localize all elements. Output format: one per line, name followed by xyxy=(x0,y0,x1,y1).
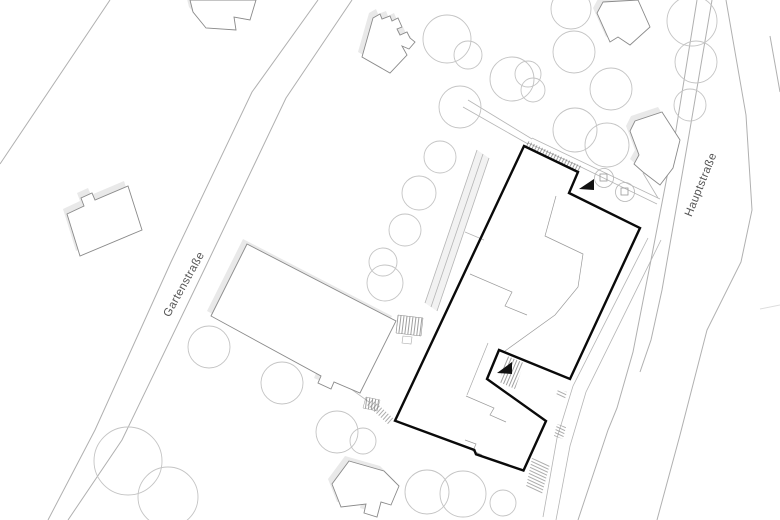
stairs-west xyxy=(396,315,423,336)
east-path-edge xyxy=(556,240,661,520)
tree-circle xyxy=(405,470,449,514)
gartenstrasse-right-edge xyxy=(68,0,352,520)
entrance-stairs-north xyxy=(526,141,581,172)
gartenstrasse-label: Gartenstraße xyxy=(162,250,208,319)
hauptstrasse-left-edge xyxy=(578,0,697,520)
field-boundary-line xyxy=(0,0,110,164)
north-path-edge xyxy=(463,107,528,144)
trees xyxy=(94,0,717,520)
main-building-footprint xyxy=(395,146,640,471)
building-northeast xyxy=(597,0,650,45)
tree-circle xyxy=(369,248,397,276)
stairs-west-landing xyxy=(402,336,412,344)
hauptstrasse-label: Hauptstraße xyxy=(683,151,719,218)
street-network xyxy=(0,0,780,520)
tree-circle xyxy=(521,78,545,102)
west-retaining-wall-line xyxy=(425,150,477,303)
tree-circle xyxy=(667,0,717,46)
building-gartenstrasse xyxy=(211,244,396,393)
entrance-triangle-icon xyxy=(579,179,594,190)
road-marking xyxy=(760,305,780,309)
building-east xyxy=(630,112,680,185)
tree-circle xyxy=(188,326,230,368)
tree-circle xyxy=(590,68,632,110)
tree-circle xyxy=(439,86,481,128)
hauptstrasse-outer-boundary xyxy=(770,36,780,92)
building-northwest xyxy=(67,186,142,256)
tree-circle xyxy=(389,214,421,246)
building-shadows xyxy=(63,0,676,512)
tree-circle xyxy=(674,89,706,121)
ramp-southeast xyxy=(526,458,550,494)
tree-circle xyxy=(553,31,595,73)
site-plan: Gartenstraße Hauptstraße xyxy=(0,0,780,520)
entrance-triangle-icon xyxy=(497,362,512,374)
context-buildings xyxy=(67,0,680,517)
tree-circle xyxy=(675,41,717,83)
east-path-edge xyxy=(543,238,648,517)
tree-circle xyxy=(367,265,403,301)
wall-segment xyxy=(556,389,567,399)
tree-circle xyxy=(424,141,456,173)
tree-circle xyxy=(94,427,162,495)
tree-circle xyxy=(402,176,436,210)
north-path-edge xyxy=(468,100,532,139)
tree-circle xyxy=(490,490,516,516)
street-trees xyxy=(595,169,635,202)
tree-circle xyxy=(138,467,198,520)
tree-circle xyxy=(440,471,486,517)
tree-circle xyxy=(515,61,541,87)
path-steps-southwest xyxy=(367,399,394,425)
tree-circle xyxy=(454,41,482,69)
wall-segment xyxy=(554,424,566,439)
tree-circle xyxy=(350,428,376,454)
roof-line xyxy=(470,274,527,315)
site-plan-svg: Gartenstraße Hauptstraße xyxy=(0,0,780,520)
tree-grate-icon xyxy=(600,174,607,181)
building-north xyxy=(190,0,256,30)
roof-line xyxy=(505,196,583,351)
footpaths xyxy=(340,100,661,520)
courtyard-wall-line xyxy=(467,343,488,395)
tree-circle xyxy=(423,15,471,63)
tree-circle xyxy=(551,0,591,29)
tree-circle xyxy=(261,362,303,404)
west-retaining-wall-line xyxy=(431,154,483,307)
hauptstrasse-right-edge xyxy=(657,0,752,520)
roof-line xyxy=(466,396,506,422)
